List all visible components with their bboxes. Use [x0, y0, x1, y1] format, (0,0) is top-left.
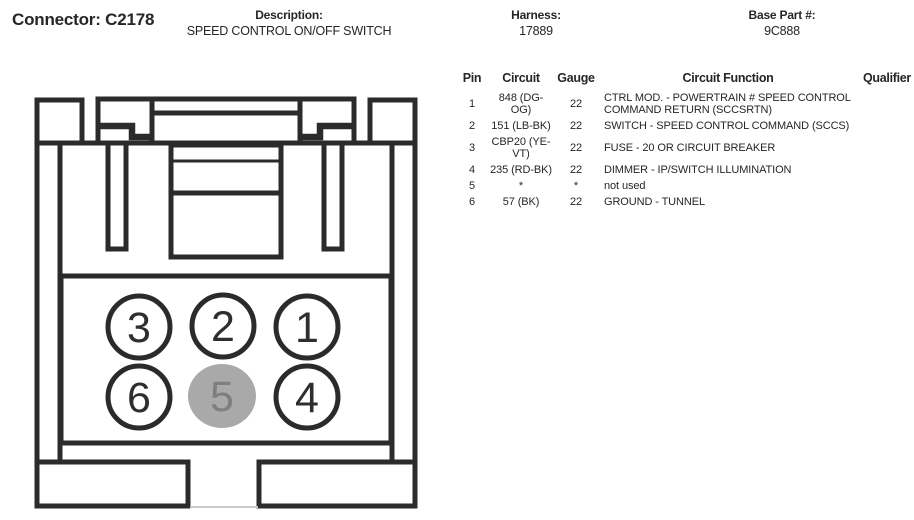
pin-row-2-qualifier [857, 125, 914, 126]
pin-row-1-qualifier [857, 103, 914, 104]
pin-row-6-pin: 6 [455, 196, 489, 208]
pin-row-3-gauge: 22 [553, 142, 599, 154]
pin-label-3: 3 [127, 304, 151, 352]
pin-row-5-gauge: * [553, 180, 599, 192]
pin-label-4: 4 [295, 374, 319, 422]
column-header-function: Circuit Function [600, 72, 856, 88]
pin-label-2: 2 [211, 303, 235, 351]
pin-row-4-circuit: 235 (RD-BK) [490, 164, 552, 176]
pin-row-5-circuit: * [490, 180, 552, 192]
pin-row-4-pin: 4 [455, 164, 489, 176]
base-part-value: 9C888 [692, 24, 872, 38]
pin-row-3-function: FUSE - 20 OR CIRCUIT BREAKER [600, 142, 856, 154]
column-header-gauge: Gauge [553, 72, 599, 88]
harness-value: 17889 [446, 24, 626, 38]
harness-block: Harness: 17889 [446, 8, 626, 38]
pin-row-2-circuit: 151 (LB-BK) [490, 120, 552, 132]
pin-row-1-gauge: 22 [553, 98, 599, 110]
pin-row-5-qualifier [857, 186, 914, 187]
connector-face-diagram: 3 2 1 6 5 4 [0, 0, 430, 520]
pin-row-3-circuit: CBP20 (YE- VT) [490, 136, 552, 160]
pin-row-6-circuit: 57 (BK) [490, 196, 552, 208]
foot-right [259, 462, 415, 506]
housing-top-bar-left [37, 100, 82, 143]
housing-top-bar-right [370, 100, 415, 143]
pin-row-5-function: not used [600, 180, 856, 192]
pin-label-1: 1 [295, 304, 319, 352]
pin-row-4-function: DIMMER - IP/SWITCH ILLUMINATION [600, 164, 856, 176]
slot-right [324, 141, 342, 249]
pin-row-4-qualifier [857, 170, 914, 171]
pin-row-4-gauge: 22 [553, 164, 599, 176]
slot-left [108, 141, 126, 249]
pin-row-2-pin: 2 [455, 120, 489, 132]
base-part-block: Base Part #: 9C888 [692, 8, 872, 38]
pin-label-5: 5 [210, 373, 234, 421]
pin-row-5-pin: 5 [455, 180, 489, 192]
column-header-qualifier: Qualifier [857, 72, 914, 88]
pin-row-1-circuit: 848 (DG- OG) [490, 92, 552, 116]
column-header-circuit: Circuit [490, 72, 552, 88]
base-part-label: Base Part #: [692, 8, 872, 22]
pin-table: Pin Circuit Gauge Circuit Function Quali… [455, 72, 914, 209]
pin-label-6: 6 [127, 374, 151, 422]
pin-row-1-function: CTRL MOD. - POWERTRAIN # SPEED CONTROL C… [600, 92, 856, 116]
pin-row-2-gauge: 22 [553, 120, 599, 132]
latch-top-bar [152, 99, 300, 113]
pin-row-1-pin: 1 [455, 98, 489, 110]
foot-left [37, 462, 188, 506]
pin-row-6-function: GROUND - TUNNEL [600, 196, 856, 208]
pin-row-6-qualifier [857, 202, 914, 203]
column-header-pin: Pin [455, 72, 489, 88]
harness-label: Harness: [446, 8, 626, 22]
pin-row-3-qualifier [857, 148, 914, 149]
pin-row-6-gauge: 22 [553, 196, 599, 208]
pin-row-3-pin: 3 [455, 142, 489, 154]
pin-row-2-function: SWITCH - SPEED CONTROL COMMAND (SCCS) [600, 120, 856, 132]
